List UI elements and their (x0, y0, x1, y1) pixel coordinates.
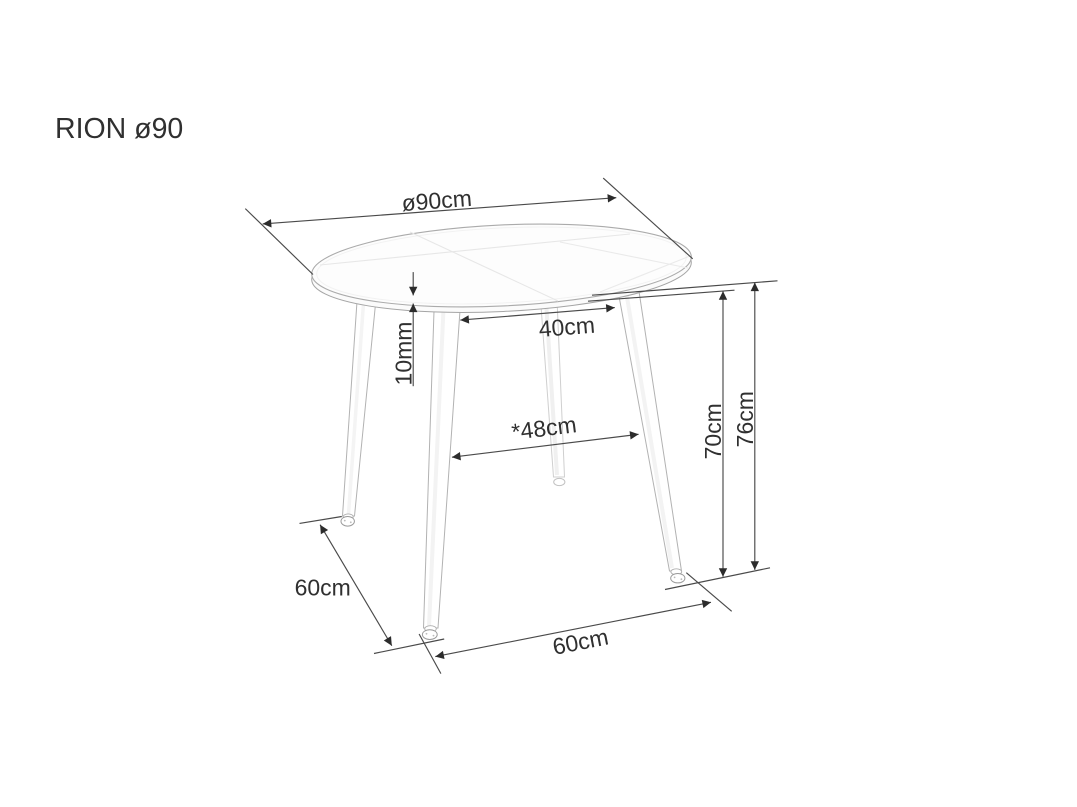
svg-text:60cm: 60cm (295, 575, 351, 601)
svg-text:ø90cm: ø90cm (401, 185, 473, 216)
svg-text:10mm: 10mm (391, 322, 417, 386)
svg-text:76cm: 76cm (732, 391, 758, 447)
svg-text:70cm: 70cm (700, 403, 726, 459)
svg-text:40cm: 40cm (538, 312, 596, 342)
svg-text:RION ø90: RION ø90 (55, 113, 183, 145)
